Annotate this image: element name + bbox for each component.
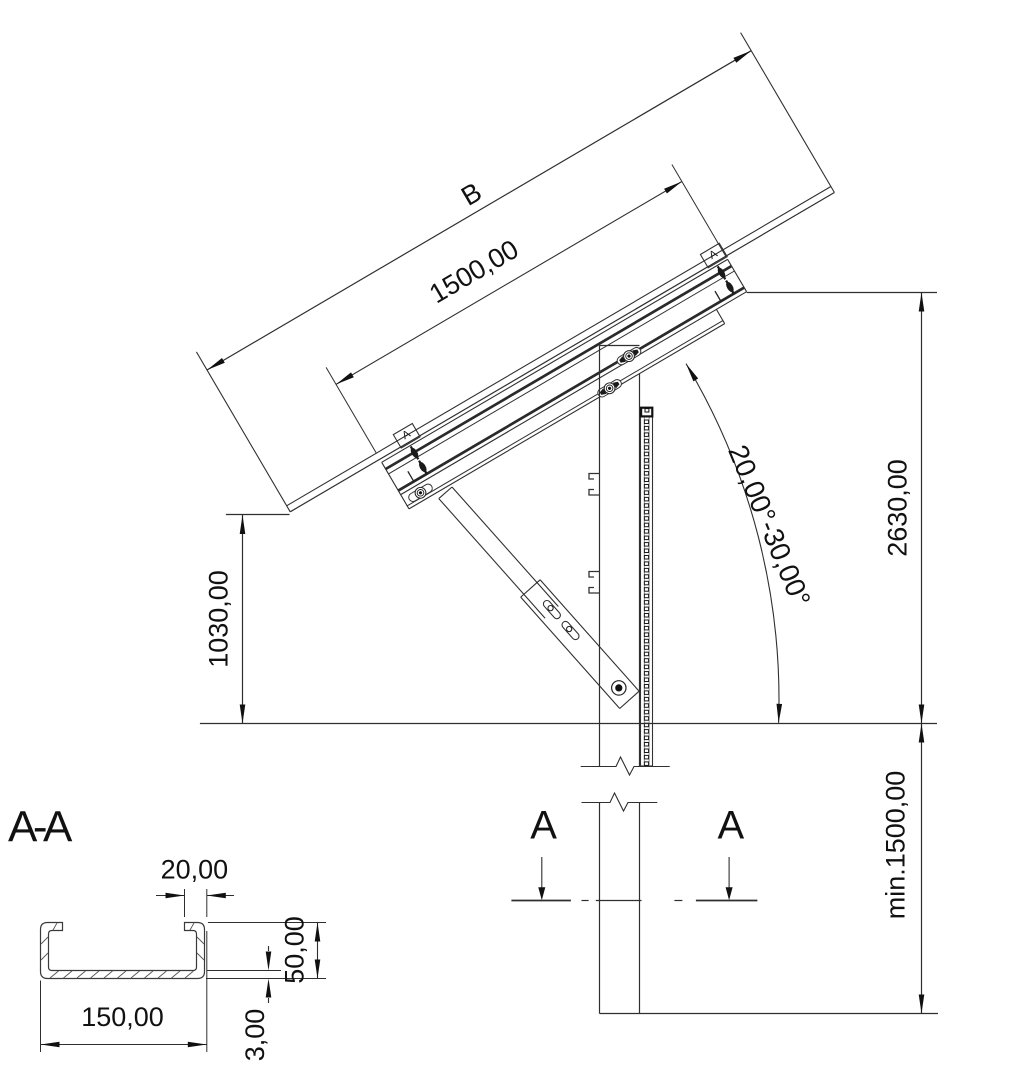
svg-text:150,00: 150,00 [81,1002,164,1032]
svg-text:1030,00: 1030,00 [204,570,234,668]
svg-text:A: A [530,804,557,848]
svg-text:50,00: 50,00 [279,916,309,984]
svg-text:3,00: 3,00 [240,1009,270,1062]
svg-text:A-A: A-A [8,803,73,852]
svg-text:min.1500,00: min.1500,00 [881,771,911,920]
svg-text:A: A [718,804,745,848]
svg-text:2630,00: 2630,00 [882,459,912,557]
svg-text:20,00: 20,00 [161,855,229,885]
